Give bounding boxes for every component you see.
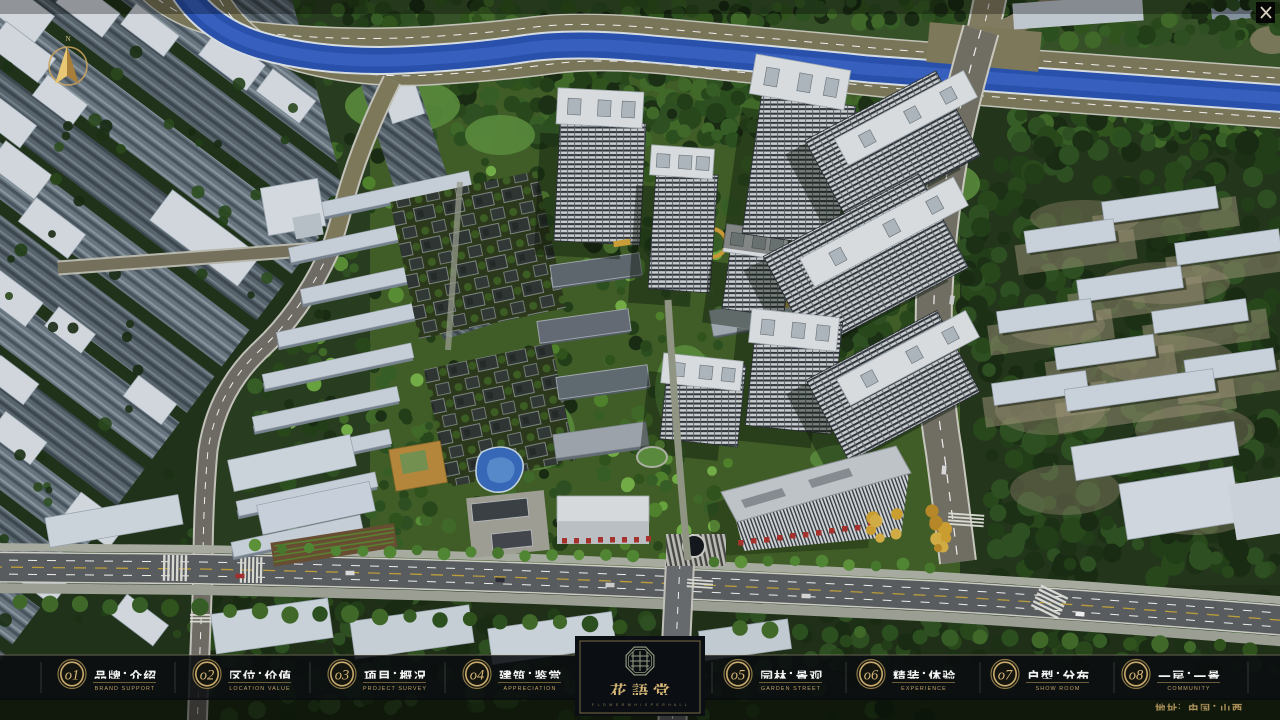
svg-text:SHOW ROOM: SHOW ROOM	[1036, 686, 1081, 692]
svg-text:EXPERIENCE: EXPERIENCE	[901, 686, 947, 692]
svg-text:o8: o8	[1129, 668, 1144, 684]
svg-text:COMMUNITY: COMMUNITY	[1167, 686, 1210, 692]
svg-text:o7: o7	[998, 668, 1013, 684]
svg-text:BRAND SUPPORT: BRAND SUPPORT	[95, 686, 156, 692]
svg-text:F L O W E R W H I S P E R H: F L O W E R W H I S P E R H A L L	[592, 703, 688, 707]
svg-text:PROJECT SURVEY: PROJECT SURVEY	[363, 686, 427, 692]
svg-text:APPRECIATION: APPRECIATION	[504, 686, 557, 692]
svg-text:o5: o5	[731, 668, 746, 684]
svg-text:o1: o1	[65, 668, 80, 684]
svg-text:o6: o6	[864, 668, 879, 684]
svg-text:o2: o2	[200, 668, 215, 684]
svg-text:o4: o4	[470, 668, 485, 684]
svg-text:N: N	[65, 35, 70, 43]
svg-text:o3: o3	[335, 668, 350, 684]
svg-text:LOCATION VALUE: LOCATION VALUE	[229, 686, 290, 692]
svg-text:GARDEN STREET: GARDEN STREET	[761, 686, 821, 692]
